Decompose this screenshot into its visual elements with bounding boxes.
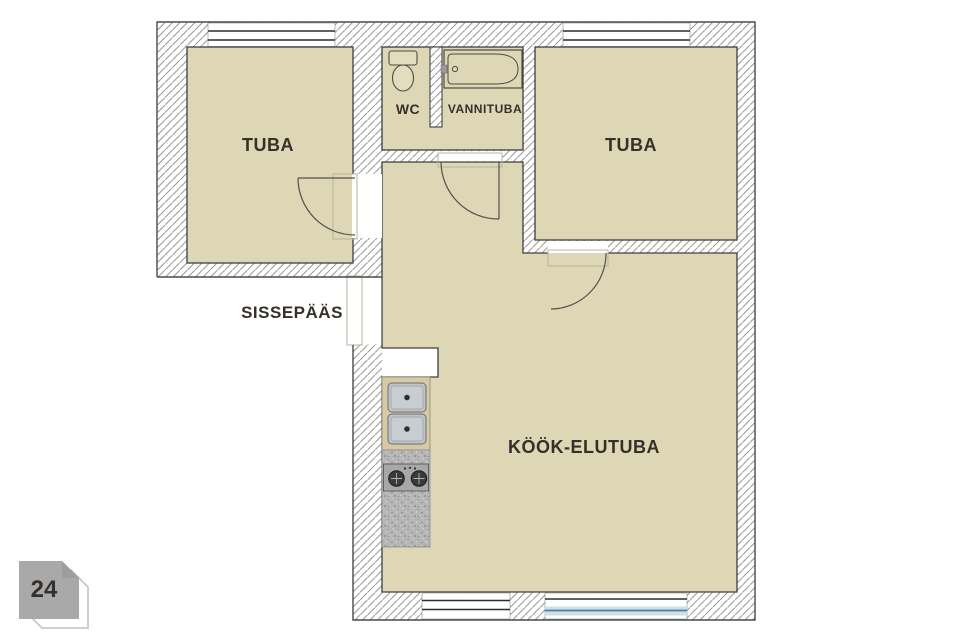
badge-fold-corner (62, 561, 79, 578)
door-opening-tuba-right (548, 241, 608, 254)
wall-tuba-left-bottom (157, 263, 382, 277)
door-opening-entrance (352, 278, 381, 345)
window-bottom-right (545, 593, 687, 619)
badge-label: 24 (31, 576, 58, 603)
window-top-left (208, 23, 335, 46)
wall-left-upper (157, 22, 187, 277)
label-kook-elutuba: KÖÖK-ELUTUBA (508, 437, 660, 457)
room-tuba-left (187, 47, 353, 263)
label-tuba-right: TUBA (605, 135, 657, 155)
stove-icon (382, 450, 430, 547)
label-wc: WC (396, 101, 420, 117)
label-tuba-left: TUBA (242, 135, 294, 155)
window-bottom-left (422, 593, 510, 619)
window-top-right (563, 23, 690, 46)
floorplan-svg: TUBA WC VANNITUBA TUBA SISSEPÄÄS KÖÖK-EL… (0, 0, 960, 640)
wall-right (737, 22, 755, 620)
wall-wc-vannituba-divider (430, 47, 442, 127)
label-vannituba: VANNITUBA (448, 102, 522, 116)
kitchen-sink-icon (382, 377, 430, 450)
floorplan-page: TUBA WC VANNITUBA TUBA SISSEPÄÄS KÖÖK-EL… (0, 0, 960, 640)
wall-vannituba-tuba-divider (523, 47, 535, 240)
label-sissepaas: SISSEPÄÄS (241, 303, 343, 322)
watermark-badge: 24 (19, 561, 88, 628)
